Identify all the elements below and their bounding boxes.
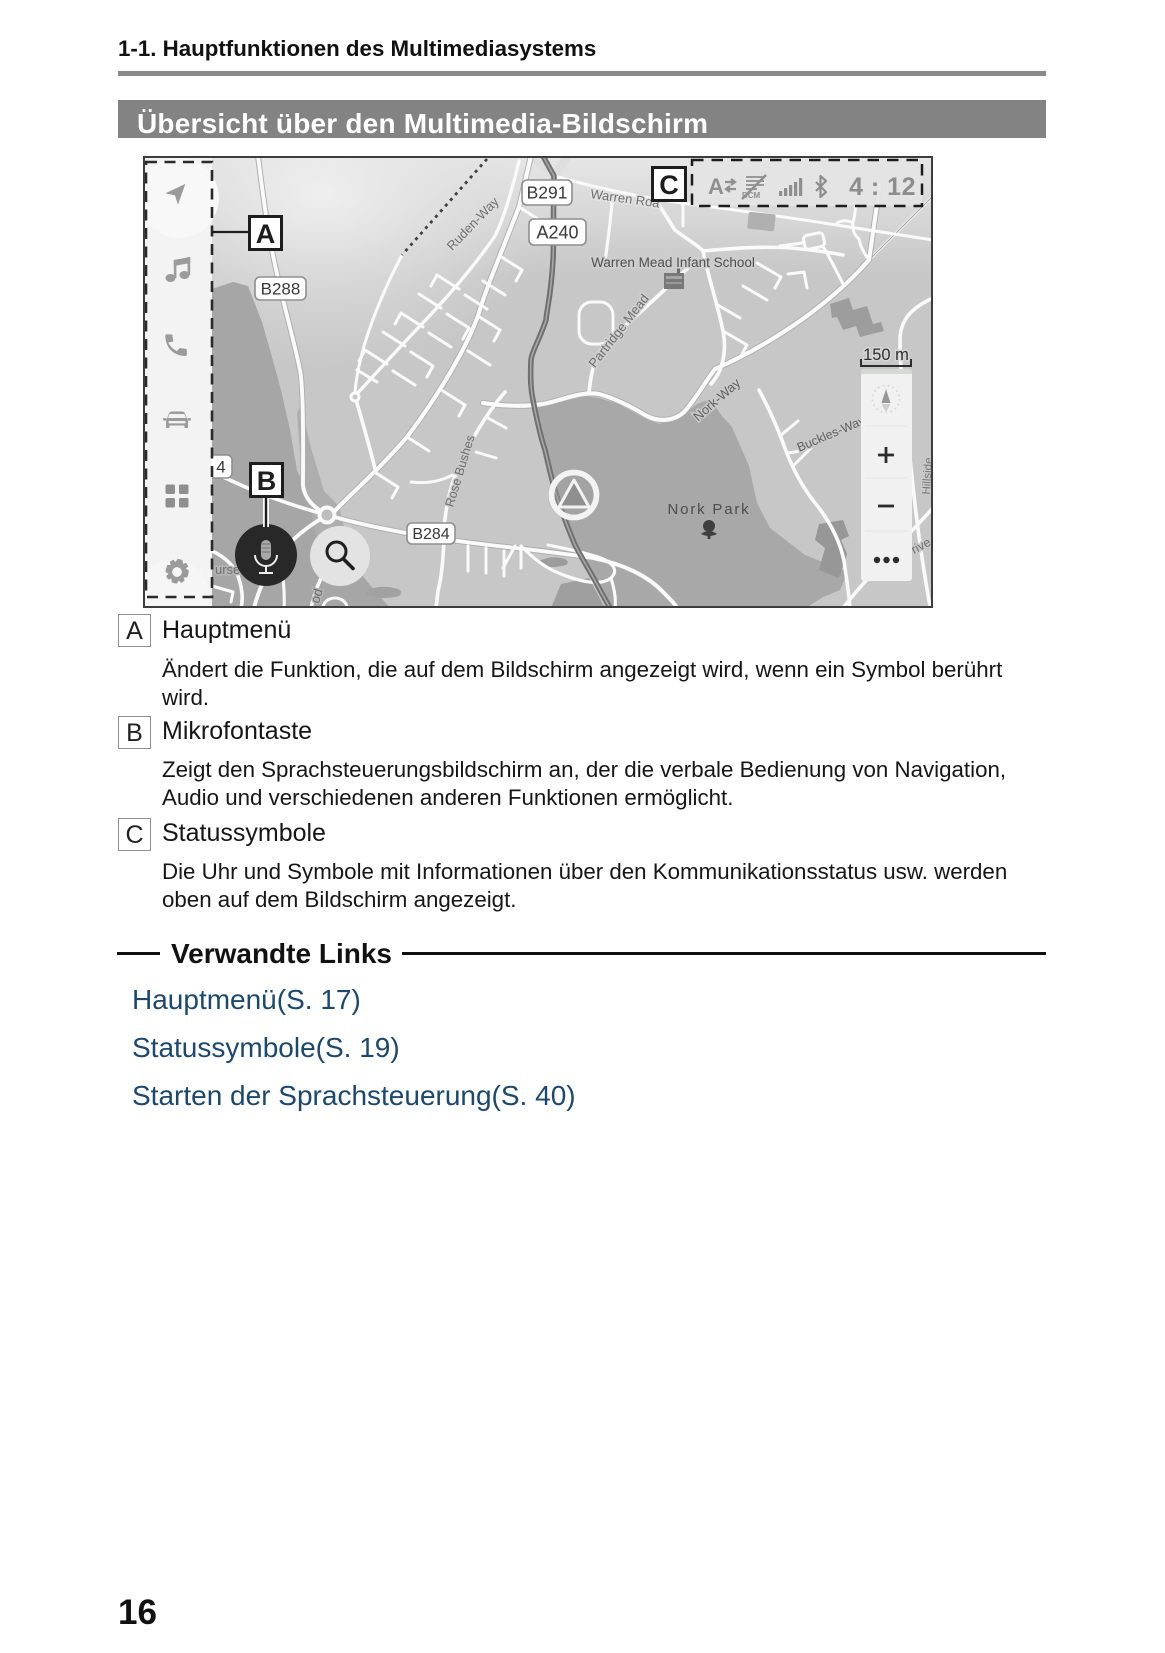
svg-text:DCM: DCM — [742, 191, 761, 200]
svg-text:4 : 12: 4 : 12 — [849, 173, 916, 201]
svg-text:C: C — [659, 170, 679, 200]
svg-text:A240: A240 — [536, 223, 578, 243]
svg-text:B291: B291 — [527, 183, 568, 203]
svg-text:A: A — [708, 174, 724, 199]
svg-text:B288: B288 — [261, 280, 301, 299]
svg-text:B284: B284 — [412, 526, 449, 543]
svg-text:B: B — [257, 466, 277, 496]
svg-text:Nork Park: Nork Park — [668, 501, 751, 518]
svg-text:A: A — [256, 219, 276, 249]
svg-text:150 m: 150 m — [863, 346, 909, 364]
svg-text:4: 4 — [216, 458, 225, 477]
svg-text:Warren Mead Infant School: Warren Mead Infant School — [591, 255, 755, 270]
